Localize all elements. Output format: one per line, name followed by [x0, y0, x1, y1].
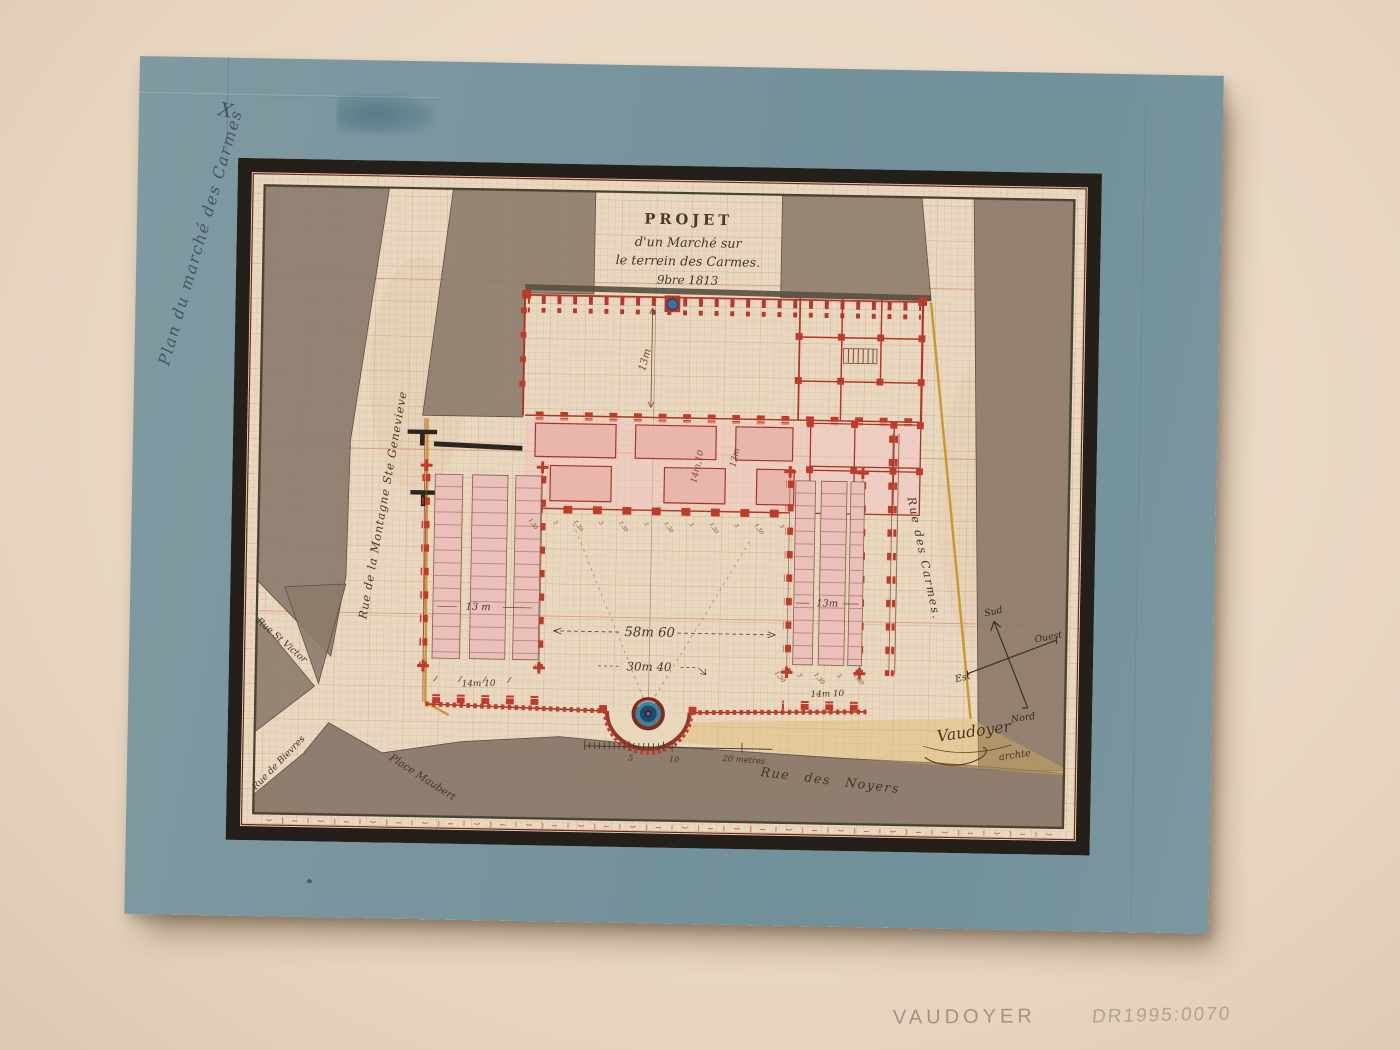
- title-line-4: 9bre 1813: [657, 273, 719, 288]
- photograph-of-drawing: { "artwork": { "title": { "l1": "PROJET"…: [0, 0, 1400, 1050]
- mount-pencil-inscription: Plan du marché des Carmes: [154, 107, 246, 367]
- title-line-2: d'un Marché sur: [635, 235, 743, 252]
- blue-mount-paper: Plan du marché des Carmes X: [124, 56, 1224, 934]
- dim-west-wing: 13 m: [466, 602, 491, 613]
- dim-court-width: 58m 60: [624, 625, 675, 641]
- scale-label-10: 10: [669, 755, 680, 765]
- stair-glyph: [843, 349, 877, 364]
- mat-artist-caption: VAUDOYER: [893, 1005, 1036, 1029]
- block-north-right: [781, 196, 933, 300]
- blue-stamp-smudge: [337, 94, 434, 136]
- plan-drawing: PROJET d'un Marché sur le terrein des Ca…: [226, 158, 1102, 856]
- mount-crease-right: [1130, 104, 1146, 924]
- title-line-3: le terrein des Carmes.: [616, 253, 761, 271]
- mount-fleck: [307, 879, 312, 883]
- dim-south-right: 14m 10: [810, 689, 844, 700]
- title-line-1: PROJET: [644, 211, 733, 230]
- gallery-stalls-lower: [550, 465, 794, 505]
- drawing-sheet: PROJET d'un Marché sur le terrein des Ca…: [226, 158, 1102, 856]
- wall-fountain-basin: [667, 299, 678, 310]
- dim-east-wing: 13m: [816, 598, 838, 609]
- dim-south-left: 14m 10: [462, 679, 496, 690]
- mat-accession-number: DR1995:0070: [1091, 1004, 1232, 1029]
- dim-court-depth: 30m 40: [627, 659, 673, 674]
- gallery-stalls-upper: [535, 423, 793, 461]
- scale-label-5: 5: [628, 753, 634, 762]
